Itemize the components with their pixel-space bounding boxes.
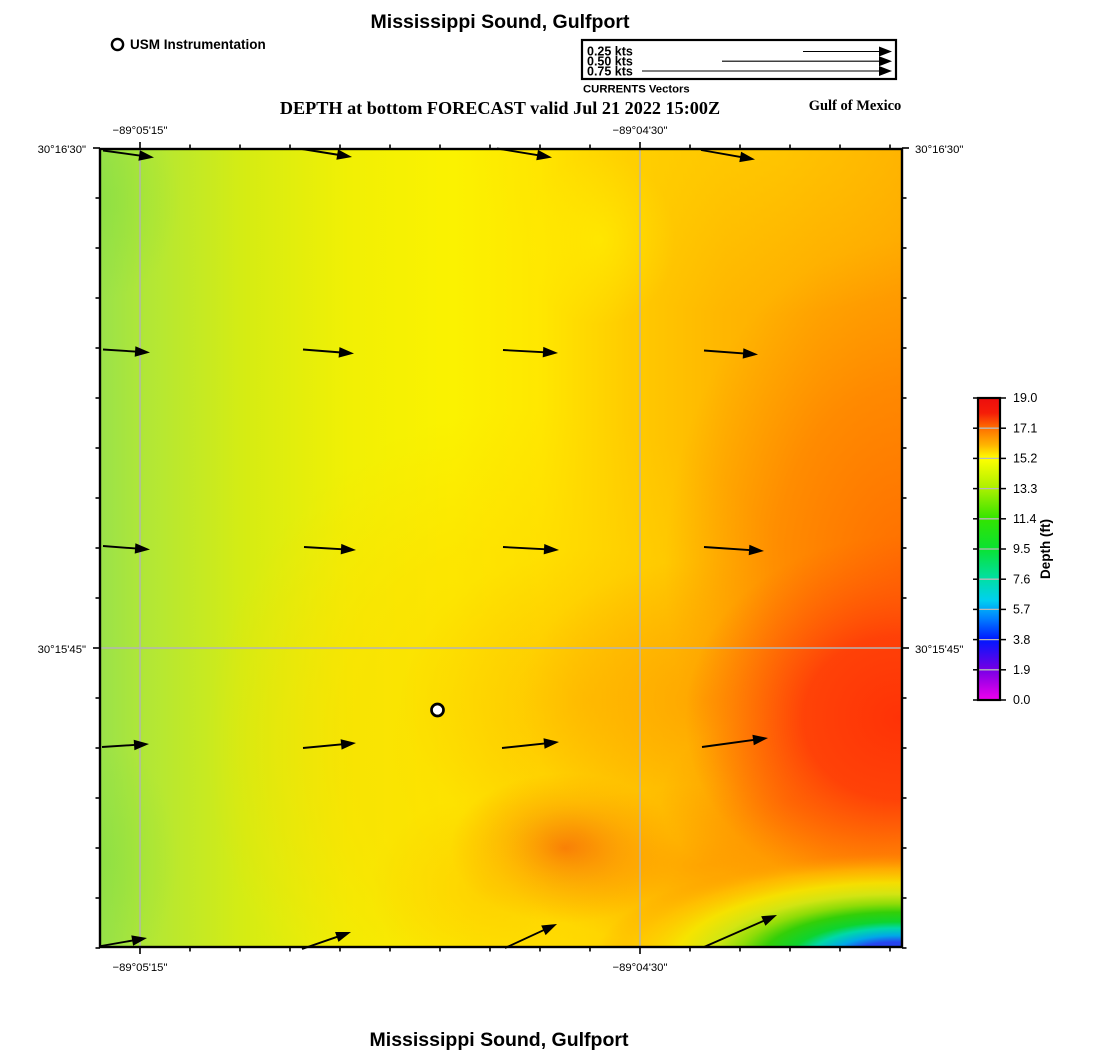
svg-text:15.2: 15.2	[1013, 452, 1037, 466]
svg-text:30°16'30": 30°16'30"	[915, 144, 963, 156]
svg-text:30°15'45": 30°15'45"	[38, 644, 86, 656]
svg-text:−89°04'30": −89°04'30"	[613, 962, 668, 974]
svg-text:0.75 kts: 0.75 kts	[587, 65, 633, 79]
svg-text:5.7: 5.7	[1013, 603, 1030, 617]
svg-text:−89°05'15": −89°05'15"	[113, 125, 168, 137]
svg-text:11.4: 11.4	[1013, 512, 1036, 526]
svg-text:13.3: 13.3	[1013, 482, 1037, 496]
svg-text:CURRENTS Vectors: CURRENTS Vectors	[583, 84, 690, 96]
svg-text:9.5: 9.5	[1013, 542, 1030, 556]
svg-text:19.0: 19.0	[1013, 391, 1037, 405]
svg-text:−89°04'30": −89°04'30"	[613, 125, 668, 137]
svg-text:0.0: 0.0	[1013, 693, 1030, 707]
svg-text:Depth (ft): Depth (ft)	[1038, 519, 1053, 579]
svg-text:Mississippi Sound, Gulfport: Mississippi Sound, Gulfport	[370, 1029, 629, 1050]
svg-text:−89°05'15": −89°05'15"	[113, 962, 168, 974]
svg-text:3.8: 3.8	[1013, 633, 1030, 647]
svg-text:Mississippi Sound, Gulfport: Mississippi Sound, Gulfport	[371, 11, 630, 33]
svg-text:DEPTH at bottom FORECAST valid: DEPTH at bottom FORECAST valid Jul 21 20…	[280, 98, 720, 118]
svg-text:1.9: 1.9	[1013, 663, 1030, 677]
svg-text:17.1: 17.1	[1013, 421, 1037, 435]
svg-text:USM Instrumentation: USM Instrumentation	[130, 37, 266, 52]
svg-text:7.6: 7.6	[1013, 572, 1030, 586]
svg-text:Gulf of Mexico: Gulf of Mexico	[809, 98, 902, 114]
svg-text:30°16'30": 30°16'30"	[38, 144, 86, 156]
svg-text:30°15'45": 30°15'45"	[915, 644, 963, 656]
